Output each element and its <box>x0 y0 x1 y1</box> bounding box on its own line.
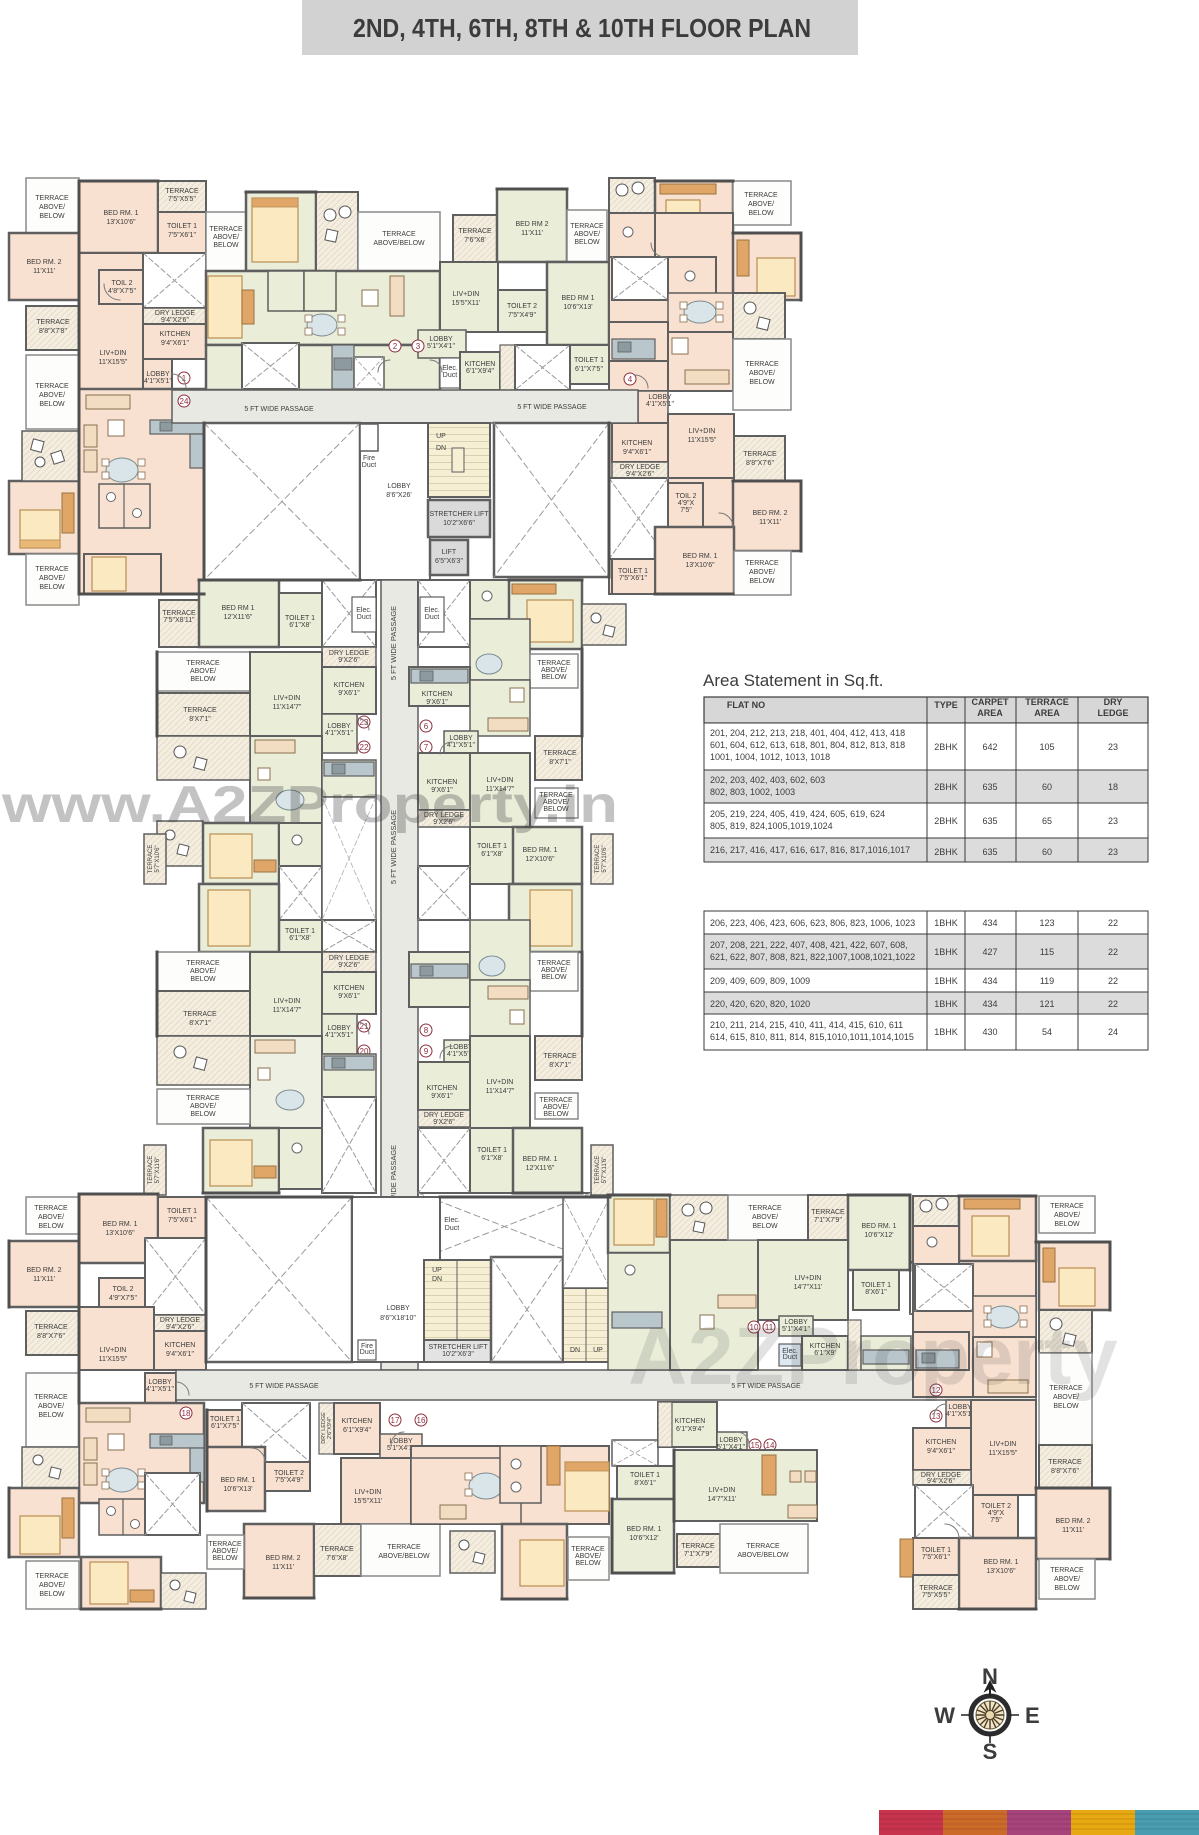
svg-text:9'X2'6": 9'X2'6" <box>433 1119 455 1126</box>
svg-text:11'X15'5": 11'X15'5" <box>99 1356 128 1363</box>
svg-text:ABOVE/: ABOVE/ <box>541 667 567 674</box>
svg-text:7: 7 <box>424 743 429 752</box>
svg-text:BED RM. 2: BED RM. 2 <box>26 1267 61 1274</box>
svg-text:TERRACE: TERRACE <box>387 1544 421 1551</box>
svg-text:8'6"X26': 8'6"X26' <box>386 492 411 499</box>
svg-text:9'X6'1": 9'X6'1" <box>338 690 360 697</box>
svg-text:11'X15'5": 11'X15'5" <box>989 1450 1018 1457</box>
svg-text:TERRACE: TERRACE <box>571 1546 605 1553</box>
svg-text:Elec.: Elec. <box>424 607 440 614</box>
svg-text:TERRACE: TERRACE <box>743 451 777 458</box>
svg-text:TOILET 2: TOILET 2 <box>274 1470 304 1477</box>
svg-text:LIV+DIN: LIV+DIN <box>709 1487 736 1494</box>
svg-text:TERRACE: TERRACE <box>681 1543 715 1550</box>
svg-text:12'X11'6": 12'X11'6" <box>526 1165 555 1172</box>
svg-text:614, 615, 810, 811, 814, 815,1: 614, 615, 810, 811, 814, 815,1010,1011,1… <box>710 1032 914 1042</box>
svg-text:7'1"X7'9": 7'1"X7'9" <box>814 1217 842 1224</box>
svg-text:BELOW: BELOW <box>1053 1403 1079 1410</box>
svg-text:DRY LEDGE: DRY LEDGE <box>424 1112 465 1119</box>
svg-text:TOILET 1: TOILET 1 <box>285 928 315 935</box>
svg-text:TERRACE: TERRACE <box>35 195 69 202</box>
svg-text:BED RM. 2: BED RM. 2 <box>26 259 61 266</box>
svg-text:LIV+DIN: LIV+DIN <box>355 1489 382 1496</box>
svg-text:y: y <box>1072 1311 1118 1402</box>
svg-text:7'6"X8': 7'6"X8' <box>326 1555 348 1562</box>
svg-text:5'7"X11'6": 5'7"X11'6" <box>602 1157 608 1184</box>
svg-text:ABOVE/: ABOVE/ <box>38 1403 64 1410</box>
svg-text:216, 217, 416, 417, 616, 617,: 216, 217, 416, 417, 616, 617, 816, 817,1… <box>710 845 910 855</box>
svg-text:15: 15 <box>751 1441 760 1450</box>
svg-text:635: 635 <box>982 782 997 792</box>
svg-text:Z: Z <box>734 1311 784 1402</box>
svg-text:KITCHEN: KITCHEN <box>675 1418 706 1425</box>
svg-text:DRY LEDGE: DRY LEDGE <box>155 310 196 317</box>
svg-text:220, 420, 620, 820, 1020: 220, 420, 620, 820, 1020 <box>710 999 810 1009</box>
svg-text:ABOVE/: ABOVE/ <box>213 234 239 241</box>
svg-text:9'4"X2'6": 9'4"X2'6" <box>927 1478 955 1485</box>
svg-text:TERRACE: TERRACE <box>186 960 220 967</box>
svg-text:ABOVE/BELOW: ABOVE/BELOW <box>373 240 425 247</box>
svg-text:11'X11': 11'X11' <box>521 230 543 237</box>
svg-text:24: 24 <box>180 397 189 406</box>
svg-text:KITCHEN: KITCHEN <box>342 1418 373 1425</box>
svg-text:TERRACE: TERRACE <box>748 1205 782 1212</box>
svg-text:KITCHEN: KITCHEN <box>165 1342 196 1349</box>
svg-text:11'X11': 11'X11' <box>33 1276 55 1283</box>
svg-text:210, 211, 214, 215, 410, 411,: 210, 211, 214, 215, 410, 411, 414, 415, … <box>710 1020 903 1030</box>
svg-text:o: o <box>872 1311 922 1402</box>
svg-text:TOILET 1: TOILET 1 <box>574 357 604 364</box>
svg-text:2'6"X9'4": 2'6"X9'4" <box>327 1417 333 1439</box>
svg-text:TOILET 1: TOILET 1 <box>921 1547 951 1554</box>
svg-text:Elec.: Elec. <box>444 1217 460 1224</box>
svg-text:17: 17 <box>391 1416 400 1425</box>
svg-text:4'9"X7'5": 4'9"X7'5" <box>109 1295 137 1302</box>
svg-text:8'X7'1": 8'X7'1" <box>549 759 571 766</box>
svg-text:ABOVE/: ABOVE/ <box>575 1553 601 1560</box>
svg-text:BELOW: BELOW <box>749 379 775 386</box>
svg-text:14'7"X11': 14'7"X11' <box>794 1284 823 1291</box>
svg-text:1BHK: 1BHK <box>934 1027 958 1037</box>
svg-text:54: 54 <box>1042 1027 1052 1037</box>
svg-text:TERRACE: TERRACE <box>35 383 69 390</box>
svg-text:10'6"X12': 10'6"X12' <box>629 1535 658 1542</box>
svg-text:BED RM. 1: BED RM. 1 <box>522 847 557 854</box>
svg-text:AREA: AREA <box>1034 708 1060 718</box>
svg-text:ABOVE/: ABOVE/ <box>39 575 65 582</box>
svg-text:LIV+DIN: LIV+DIN <box>487 1079 514 1086</box>
svg-text:UP: UP <box>436 433 446 440</box>
svg-text:21: 21 <box>360 1022 369 1031</box>
svg-text:UP: UP <box>593 1347 603 1354</box>
svg-text:TERRACE: TERRACE <box>1025 697 1069 707</box>
svg-text:11'X15'5": 11'X15'5" <box>99 359 128 366</box>
svg-text:ABOVE/: ABOVE/ <box>749 370 775 377</box>
svg-text:BELOW: BELOW <box>39 1591 65 1598</box>
svg-text:11'X14'7": 11'X14'7" <box>273 1007 302 1014</box>
svg-text:802, 803, 1002, 1003: 802, 803, 1002, 1003 <box>710 787 795 797</box>
svg-text:TOIL 2: TOIL 2 <box>111 280 132 287</box>
svg-text:12'X10'6": 12'X10'6" <box>525 856 555 863</box>
svg-text:TERRACE: TERRACE <box>543 750 577 757</box>
svg-text:635: 635 <box>982 847 997 857</box>
svg-text:9'4"X2'6": 9'4"X2'6" <box>626 471 654 478</box>
svg-text:7'5"X5'5": 7'5"X5'5" <box>168 196 196 203</box>
svg-text:BELOW: BELOW <box>752 1223 778 1230</box>
svg-text:FLAT NO: FLAT NO <box>727 700 765 710</box>
svg-text:BELOW: BELOW <box>541 674 567 681</box>
svg-text:BED RM. 2: BED RM. 2 <box>265 1555 300 1562</box>
svg-text:BELOW: BELOW <box>190 676 216 683</box>
svg-text:TERRACE: TERRACE <box>382 231 416 238</box>
svg-text:4'1"X5'1": 4'1"X5'1" <box>447 742 475 749</box>
svg-text:9'X2'6": 9'X2'6" <box>338 962 360 969</box>
svg-text:430: 430 <box>982 1027 997 1037</box>
svg-text:2BHK: 2BHK <box>934 742 958 752</box>
svg-text:LOBBY: LOBBY <box>148 1379 172 1386</box>
svg-text:10'2"X6'6": 10'2"X6'6" <box>443 520 475 527</box>
svg-text:6'1"X7'5": 6'1"X7'5" <box>575 366 603 373</box>
svg-text:ABOVE/: ABOVE/ <box>39 1582 65 1589</box>
svg-text:2: 2 <box>688 1311 734 1402</box>
svg-text:23: 23 <box>1108 847 1118 857</box>
svg-text:BED RM. 2: BED RM. 2 <box>1055 1518 1090 1525</box>
svg-text:ABOVE/: ABOVE/ <box>38 1214 64 1221</box>
svg-text:BED RM. 1: BED RM. 1 <box>626 1526 661 1533</box>
svg-text:DRY LEDGE: DRY LEDGE <box>329 650 370 657</box>
svg-text:209, 409, 609, 809, 1009: 209, 409, 609, 809, 1009 <box>710 976 810 986</box>
svg-text:23: 23 <box>360 718 369 727</box>
svg-text:Elec.: Elec. <box>442 365 458 372</box>
svg-text:LOBBY: LOBBY <box>327 723 351 730</box>
svg-text:TOILET 2: TOILET 2 <box>507 303 537 310</box>
svg-text:7'5"X5'5": 7'5"X5'5" <box>922 1592 950 1599</box>
svg-text:LIV+DIN: LIV+DIN <box>795 1275 822 1282</box>
svg-text:BED RM. 1: BED RM. 1 <box>220 1477 255 1484</box>
svg-text:5'7"X10'6": 5'7"X10'6" <box>155 845 161 872</box>
svg-text:201, 204, 212, 213, 218, 401,: 201, 204, 212, 213, 218, 401, 404, 412, … <box>710 728 905 738</box>
svg-text:13'X10'6": 13'X10'6" <box>685 562 715 569</box>
svg-text:10'6"X13': 10'6"X13' <box>223 1486 252 1493</box>
svg-text:TERRACE: TERRACE <box>458 228 492 235</box>
svg-text:TOILET 1: TOILET 1 <box>630 1472 660 1479</box>
svg-text:LOBBY: LOBBY <box>386 1305 410 1312</box>
svg-text:13'X10'6": 13'X10'6" <box>106 219 136 226</box>
svg-text:TERRACE: TERRACE <box>539 1097 573 1104</box>
svg-text:BELOW: BELOW <box>39 401 65 408</box>
svg-text:TOIL 2: TOIL 2 <box>675 493 696 500</box>
svg-text:Duct: Duct <box>443 372 457 379</box>
svg-text:9'4"X2'6": 9'4"X2'6" <box>166 1324 194 1331</box>
svg-text:Duct: Duct <box>357 614 371 621</box>
svg-text:TERRACE: TERRACE <box>36 319 70 326</box>
svg-text:CARPET: CARPET <box>971 697 1009 707</box>
svg-text:BED RM. 1: BED RM. 1 <box>102 1221 137 1228</box>
svg-text:123: 123 <box>1039 918 1054 928</box>
svg-text:22: 22 <box>1108 999 1118 1009</box>
svg-text:KITCHEN: KITCHEN <box>334 682 365 689</box>
svg-text:BELOW: BELOW <box>38 1412 64 1419</box>
svg-text:TERRACE: TERRACE <box>1048 1459 1082 1466</box>
svg-text:9'4"X6'1": 9'4"X6'1" <box>927 1448 955 1455</box>
svg-text:434: 434 <box>982 999 997 1009</box>
svg-text:e: e <box>968 1311 1014 1402</box>
svg-text:8'X6'1": 8'X6'1" <box>634 1480 656 1487</box>
svg-text:22: 22 <box>1108 947 1118 957</box>
svg-text:6'1"X9'4": 6'1"X9'4" <box>466 368 494 375</box>
svg-text:6'1"X9'4": 6'1"X9'4" <box>343 1427 371 1434</box>
svg-text:t: t <box>1044 1311 1071 1402</box>
svg-text:TERRACE: TERRACE <box>209 226 243 233</box>
svg-text:DRY LEDGE: DRY LEDGE <box>329 955 370 962</box>
svg-text:60: 60 <box>1042 847 1052 857</box>
svg-text:TERRACE: TERRACE <box>34 1394 68 1401</box>
svg-text:10'6"X12': 10'6"X12' <box>864 1232 893 1239</box>
svg-text:TERRACE: TERRACE <box>162 610 196 617</box>
svg-text:LIFT: LIFT <box>442 549 457 556</box>
svg-text:23: 23 <box>1108 742 1118 752</box>
svg-text:9'4"X6'1": 9'4"X6'1" <box>161 340 189 347</box>
svg-text:TOILET 2: TOILET 2 <box>981 1503 1011 1510</box>
svg-text:TERRACE: TERRACE <box>595 845 601 874</box>
svg-text:TYPE: TYPE <box>934 700 958 710</box>
svg-text:7'5": 7'5" <box>680 507 692 514</box>
svg-text:BED RM 1: BED RM 1 <box>221 605 254 612</box>
svg-text:ABOVE/: ABOVE/ <box>543 1104 569 1111</box>
svg-text:434: 434 <box>982 918 997 928</box>
svg-text:KITCHEN: KITCHEN <box>427 1085 458 1092</box>
svg-text:AREA: AREA <box>977 708 1003 718</box>
svg-text:LIV+DIN: LIV+DIN <box>274 695 301 702</box>
svg-text:KITCHEN: KITCHEN <box>465 361 496 368</box>
svg-text:4'1"X5'1": 4'1"X5'1" <box>146 1386 174 1393</box>
svg-text:TERRACE: TERRACE <box>34 1324 68 1331</box>
svg-text:Duct: Duct <box>425 614 439 621</box>
svg-text:TERRACE: TERRACE <box>35 566 69 573</box>
svg-text:18: 18 <box>1108 782 1118 792</box>
svg-text:1BHK: 1BHK <box>934 918 958 928</box>
svg-text:8'X7'1": 8'X7'1" <box>189 1020 211 1027</box>
svg-text:BELOW: BELOW <box>749 578 775 585</box>
svg-text:TOILET 1: TOILET 1 <box>477 843 507 850</box>
svg-text:5 FT WIDE PASSAGE: 5 FT WIDE PASSAGE <box>244 406 314 413</box>
svg-text:TERRACE: TERRACE <box>919 1585 953 1592</box>
svg-text:TERRACE: TERRACE <box>744 192 778 199</box>
svg-text:5'7"X10'6": 5'7"X10'6" <box>602 845 608 872</box>
svg-text:TOILET 1: TOILET 1 <box>167 1208 197 1215</box>
svg-text:1BHK: 1BHK <box>934 947 958 957</box>
svg-text:BED RM. 1: BED RM. 1 <box>983 1559 1018 1566</box>
svg-text:2BHK: 2BHK <box>934 782 958 792</box>
svg-text:TERRACE: TERRACE <box>35 1573 69 1580</box>
svg-text:Elec.: Elec. <box>356 607 372 614</box>
svg-text:13'X10'6": 13'X10'6" <box>105 1230 135 1237</box>
svg-text:LEDGE: LEDGE <box>1097 708 1128 718</box>
svg-text:60: 60 <box>1042 782 1052 792</box>
svg-text:DRY LEDGE: DRY LEDGE <box>620 464 661 471</box>
svg-text:7'5"X4'9": 7'5"X4'9" <box>508 312 536 319</box>
svg-text:TOILET 1: TOILET 1 <box>210 1416 240 1423</box>
svg-text:TERRACE: TERRACE <box>745 560 779 567</box>
svg-text:4'1"X5'1": 4'1"X5'1" <box>325 730 353 737</box>
svg-text:TOILET 1: TOILET 1 <box>285 615 315 622</box>
svg-text:KITCHEN: KITCHEN <box>160 331 191 338</box>
svg-text:121: 121 <box>1039 999 1054 1009</box>
svg-text:11'X14'7": 11'X14'7" <box>273 704 302 711</box>
svg-text:ABOVE/: ABOVE/ <box>190 968 216 975</box>
svg-text:TERRACE: TERRACE <box>1050 1203 1084 1210</box>
svg-text:p: p <box>920 1311 970 1402</box>
svg-text:15'5"X11': 15'5"X11' <box>452 300 481 307</box>
svg-text:4'1"X5'1": 4'1"X5'1" <box>325 1032 353 1039</box>
svg-text:5 FT WIDE PASSAGE: 5 FT WIDE PASSAGE <box>517 404 587 411</box>
svg-text:23: 23 <box>1108 816 1118 826</box>
svg-text:8'X7'1": 8'X7'1" <box>189 716 211 723</box>
svg-text:1BHK: 1BHK <box>934 976 958 986</box>
svg-text:14: 14 <box>766 1441 775 1450</box>
svg-text:ABOVE/BELOW: ABOVE/BELOW <box>737 1552 789 1559</box>
svg-text:9'X6'1": 9'X6'1" <box>426 699 448 706</box>
svg-text:BELOW: BELOW <box>575 1560 601 1567</box>
svg-text:9: 9 <box>424 1047 429 1056</box>
svg-text:7'5"X4'9": 7'5"X4'9" <box>275 1477 303 1484</box>
svg-text:601, 604, 612, 613, 618, 801,: 601, 604, 612, 613, 618, 801, 804, 812, … <box>710 740 905 750</box>
svg-text:11'X11': 11'X11' <box>759 519 781 526</box>
svg-text:8'X6'1": 8'X6'1" <box>865 1289 887 1296</box>
svg-text:BELOW: BELOW <box>574 239 600 246</box>
svg-text:6'1"X8': 6'1"X8' <box>289 622 311 629</box>
svg-text:7'5"X6'1": 7'5"X6'1" <box>168 232 196 239</box>
svg-text:434: 434 <box>982 976 997 986</box>
svg-text:12'X11'6": 12'X11'6" <box>224 614 253 621</box>
svg-text:Duct: Duct <box>360 1349 374 1356</box>
svg-text:119: 119 <box>1040 976 1054 986</box>
svg-text:4: 4 <box>628 375 633 384</box>
svg-text:BELOW: BELOW <box>38 1223 64 1230</box>
svg-text:TOIL 2: TOIL 2 <box>112 1286 133 1293</box>
svg-text:4'1"X5'1": 4'1"X5'1" <box>646 401 674 408</box>
svg-text:BELOW: BELOW <box>748 210 774 217</box>
svg-text:KITCHEN: KITCHEN <box>422 691 453 698</box>
svg-text:11'X14'7": 11'X14'7" <box>486 1088 515 1095</box>
svg-text:105: 105 <box>1039 742 1054 752</box>
svg-text:16: 16 <box>417 1416 426 1425</box>
svg-text:BED RM. 1: BED RM. 1 <box>861 1223 896 1230</box>
svg-text:TERRACE: TERRACE <box>746 1543 780 1550</box>
svg-text:BELOW: BELOW <box>213 242 239 249</box>
svg-text:BED RM. 1: BED RM. 1 <box>522 1156 557 1163</box>
svg-text:TERRACE: TERRACE <box>186 660 220 667</box>
svg-text:2BHK: 2BHK <box>934 816 958 826</box>
svg-text:r: r <box>840 1311 872 1402</box>
svg-text:22: 22 <box>360 743 369 752</box>
svg-text:1001, 1004, 1012, 1013, 1018: 1001, 1004, 1012, 1013, 1018 <box>710 752 830 762</box>
svg-text:LIV+DIN: LIV+DIN <box>453 291 480 298</box>
svg-text:9'4"X6'1": 9'4"X6'1" <box>166 1351 194 1358</box>
svg-text:BELOW: BELOW <box>39 213 65 220</box>
svg-text:7'5"X6'1": 7'5"X6'1" <box>168 1217 196 1224</box>
svg-text:BELOW: BELOW <box>541 974 567 981</box>
svg-text:8'8"X7'8": 8'8"X7'8" <box>39 328 67 335</box>
svg-text:10'2"X6'3": 10'2"X6'3" <box>442 1351 474 1358</box>
svg-text:15'5"X11': 15'5"X11' <box>354 1498 383 1505</box>
svg-text:205, 219, 224, 405, 419, 424,: 205, 219, 224, 405, 419, 424, 605, 619, … <box>710 809 885 819</box>
svg-text:9'4"X6'1": 9'4"X6'1" <box>623 449 651 456</box>
svg-text:LOBBY: LOBBY <box>648 394 672 401</box>
svg-text:TERRACE: TERRACE <box>34 1205 68 1212</box>
svg-text:9'4"X2'6": 9'4"X2'6" <box>161 317 189 324</box>
svg-text:LOBBY: LOBBY <box>948 1404 972 1411</box>
svg-text:BED RM. 1: BED RM. 1 <box>682 553 717 560</box>
svg-text:DN: DN <box>570 1347 580 1354</box>
svg-text:BELOW: BELOW <box>1054 1585 1080 1592</box>
svg-text:ABOVE/: ABOVE/ <box>39 204 65 211</box>
svg-text:DN: DN <box>436 445 446 452</box>
svg-text:8'8"X7'6": 8'8"X7'6" <box>37 1333 65 1340</box>
svg-text:621, 622, 807, 808, 821, 822,1: 621, 622, 807, 808, 821, 822,1007,1008,1… <box>710 952 915 962</box>
svg-text:18: 18 <box>182 1409 191 1418</box>
svg-text:UP: UP <box>432 1267 442 1274</box>
svg-text:8'8"X7'6": 8'8"X7'6" <box>1051 1468 1079 1475</box>
svg-text:ABOVE/: ABOVE/ <box>190 668 216 675</box>
svg-text:13'X10'6": 13'X10'6" <box>986 1568 1016 1575</box>
svg-text:BELOW: BELOW <box>190 976 216 983</box>
svg-text:LOBBY: LOBBY <box>449 735 473 742</box>
svg-text:TERRACE: TERRACE <box>1050 1567 1084 1574</box>
svg-text:11'X15'5": 11'X15'5" <box>688 437 717 444</box>
svg-text:11'X11': 11'X11' <box>33 268 55 275</box>
svg-text:www.A2ZProperty.in: www.A2ZProperty.in <box>1 776 618 834</box>
svg-text:BED RM 1: BED RM 1 <box>561 295 594 302</box>
svg-text:E: E <box>1025 1703 1040 1728</box>
svg-text:ABOVE/: ABOVE/ <box>749 569 775 576</box>
svg-text:7'5"X8'11": 7'5"X8'11" <box>163 617 195 624</box>
svg-text:KITCHEN: KITCHEN <box>334 985 365 992</box>
svg-text:LIV+DIN: LIV+DIN <box>689 428 716 435</box>
svg-text:Duct: Duct <box>445 1225 459 1232</box>
svg-text:KITCHEN: KITCHEN <box>926 1439 957 1446</box>
svg-text:5'7"X11'6": 5'7"X11'6" <box>155 1157 161 1184</box>
svg-text:9'X6'1": 9'X6'1" <box>431 1093 453 1100</box>
svg-text:7'5": 7'5" <box>990 1517 1002 1524</box>
svg-text:TERRACE: TERRACE <box>183 707 217 714</box>
svg-text:7'5"X6'1": 7'5"X6'1" <box>922 1554 950 1561</box>
svg-text:BED RM 2: BED RM 2 <box>515 221 548 228</box>
svg-text:202, 203, 402, 403, 602, 603: 202, 203, 402, 403, 602, 603 <box>710 775 825 785</box>
svg-text:8'8"X7'6": 8'8"X7'6" <box>746 460 774 467</box>
svg-text:805, 819, 824,1005,1019,1024: 805, 819, 824,1005,1019,1024 <box>710 821 833 831</box>
svg-text:TERRACE: TERRACE <box>745 361 779 368</box>
svg-text:11'X11': 11'X11' <box>1062 1527 1084 1534</box>
svg-text:3: 3 <box>416 342 421 351</box>
svg-text:P: P <box>786 1311 841 1402</box>
svg-text:2ND, 4TH, 6TH, 8TH & 10TH FLOO: 2ND, 4TH, 6TH, 8TH & 10TH FLOOR PLAN <box>353 13 811 43</box>
svg-text:ABOVE/: ABOVE/ <box>39 392 65 399</box>
svg-text:206, 223, 406, 423, 606, 623,: 206, 223, 406, 423, 606, 623, 806, 823, … <box>710 918 915 928</box>
svg-text:Duct: Duct <box>362 462 376 469</box>
svg-text:22: 22 <box>1108 976 1118 986</box>
svg-text:TERRACE: TERRACE <box>320 1546 354 1553</box>
svg-text:115: 115 <box>1040 947 1054 957</box>
svg-text:DN: DN <box>432 1276 442 1283</box>
svg-text:8'6"X18'10": 8'6"X18'10" <box>380 1315 416 1322</box>
svg-text:DRY LEDGE: DRY LEDGE <box>160 1317 201 1324</box>
svg-text:65: 65 <box>1042 816 1052 826</box>
svg-text:4'9"X: 4'9"X <box>678 500 695 507</box>
svg-text:1BHK: 1BHK <box>934 999 958 1009</box>
svg-text:W: W <box>934 1703 955 1728</box>
svg-text:8'X7'1": 8'X7'1" <box>549 1062 571 1069</box>
